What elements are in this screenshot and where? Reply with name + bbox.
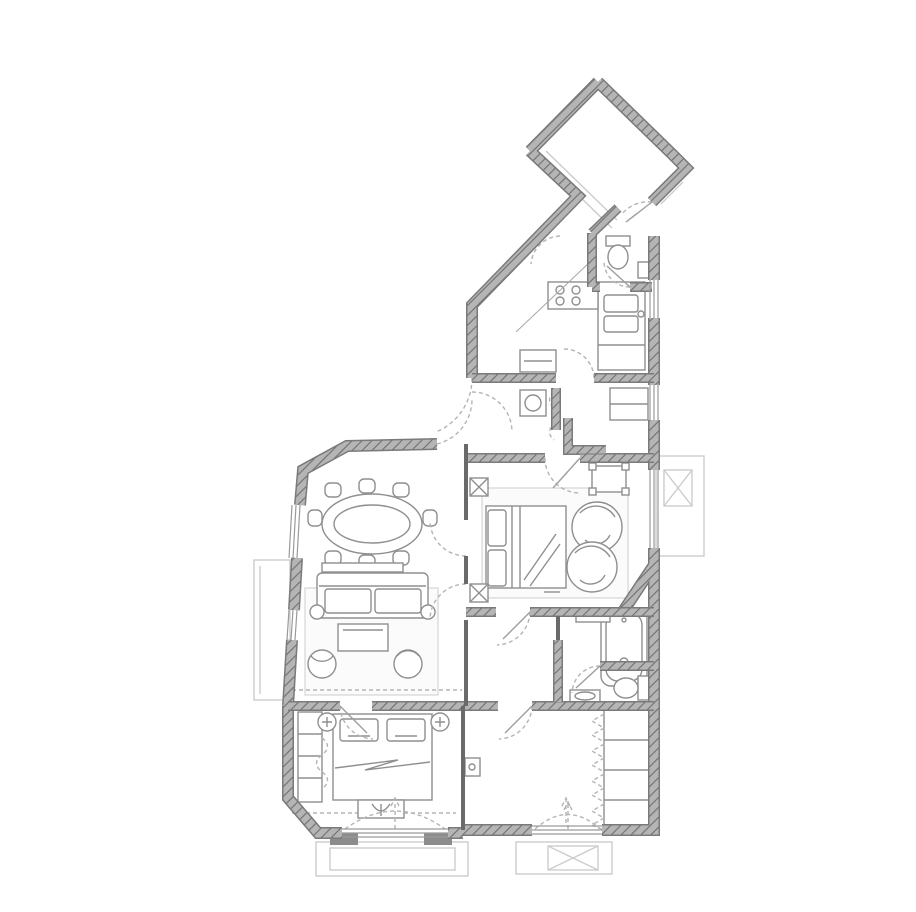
right-balcony-ac-unit xyxy=(664,470,692,506)
bottom-right-ac-platform xyxy=(516,842,612,874)
corridor-arc xyxy=(436,378,472,432)
washing-machine xyxy=(520,390,546,416)
bedroom xyxy=(298,712,449,818)
radiator xyxy=(470,478,488,496)
toilet xyxy=(614,676,652,700)
bath-wc-door-leaf xyxy=(576,666,600,688)
sideboard xyxy=(322,563,403,572)
balcony-door xyxy=(650,470,658,548)
living-left-window xyxy=(289,505,300,558)
floor-plan-canvas xyxy=(0,0,916,912)
dressing-window xyxy=(532,826,602,834)
armchair xyxy=(394,650,422,678)
dressing-window-arrow xyxy=(564,802,572,829)
wc-toilet xyxy=(606,236,630,269)
master-bedroom xyxy=(470,463,629,602)
swivel-chair xyxy=(567,542,617,592)
bathroom xyxy=(570,608,652,702)
sofa xyxy=(310,573,435,619)
floor-plan-page xyxy=(0,0,916,912)
wall-cabinet xyxy=(465,758,480,776)
utility-room xyxy=(520,388,648,440)
kitchen xyxy=(516,262,645,372)
master-door-leaf xyxy=(553,458,580,488)
dining-table xyxy=(322,494,422,554)
master-bed xyxy=(486,506,566,588)
coffee-table xyxy=(338,624,388,651)
bathroom-door-leaf xyxy=(503,612,530,639)
closet-fold-doors xyxy=(592,714,604,830)
utility-door-arc xyxy=(564,349,594,378)
living-left-window xyxy=(287,610,297,640)
entry-door-arc xyxy=(622,202,652,214)
armchair xyxy=(308,650,336,678)
corridor-arc xyxy=(437,400,472,444)
closet xyxy=(592,710,650,830)
bay-window xyxy=(316,833,468,876)
living-door-arc xyxy=(430,521,466,556)
washbasin xyxy=(570,690,600,702)
small-desk xyxy=(589,463,629,495)
entry-door-leaf xyxy=(626,202,652,222)
utility-shelves xyxy=(610,388,648,420)
kitchen-island xyxy=(520,350,556,372)
radiator xyxy=(470,584,488,602)
dressing-door-leaf xyxy=(505,706,532,733)
utility-window xyxy=(650,385,658,420)
dressing-room xyxy=(465,710,650,830)
hall-arc xyxy=(472,392,512,432)
